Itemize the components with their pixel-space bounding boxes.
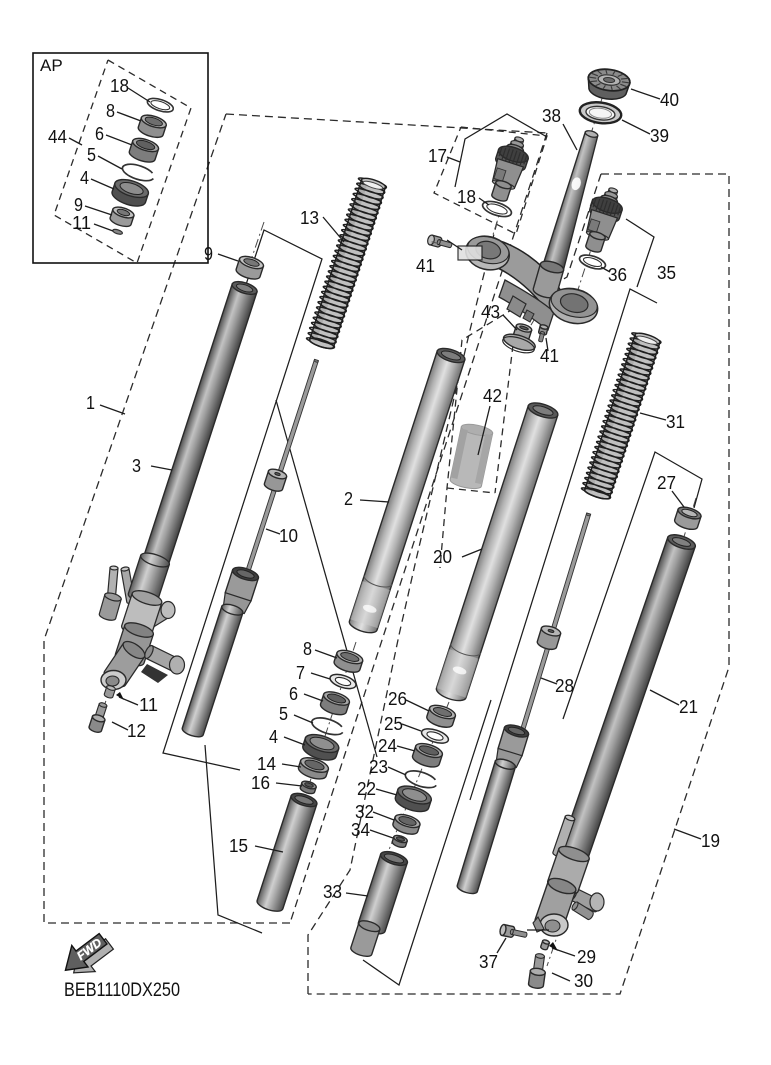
- svg-text:1: 1: [86, 392, 95, 413]
- svg-text:28: 28: [555, 675, 574, 696]
- svg-text:21: 21: [679, 696, 698, 717]
- svg-text:24: 24: [378, 735, 397, 756]
- svg-text:41: 41: [540, 345, 559, 366]
- svg-text:18: 18: [457, 186, 476, 207]
- svg-text:44: 44: [48, 126, 67, 147]
- svg-text:43: 43: [481, 301, 500, 322]
- svg-text:22: 22: [357, 778, 376, 799]
- svg-text:8: 8: [303, 638, 312, 659]
- svg-text:4: 4: [269, 726, 278, 747]
- svg-text:6: 6: [289, 683, 298, 704]
- svg-text:5: 5: [279, 703, 288, 724]
- svg-text:8: 8: [106, 100, 115, 121]
- svg-text:BEB1110DX250: BEB1110DX250: [64, 980, 180, 1001]
- svg-text:33: 33: [323, 881, 342, 902]
- svg-text:12: 12: [127, 720, 146, 741]
- svg-text:39: 39: [650, 125, 669, 146]
- svg-text:23: 23: [369, 756, 388, 777]
- svg-text:41: 41: [416, 255, 435, 276]
- svg-text:20: 20: [433, 546, 452, 567]
- svg-text:29: 29: [577, 946, 596, 967]
- svg-text:17: 17: [428, 145, 447, 166]
- svg-text:40: 40: [660, 89, 679, 110]
- svg-text:2: 2: [344, 488, 353, 509]
- svg-text:7: 7: [296, 662, 305, 683]
- svg-text:42: 42: [483, 385, 502, 406]
- svg-text:35: 35: [657, 262, 676, 283]
- svg-text:26: 26: [388, 688, 407, 709]
- svg-text:37: 37: [479, 951, 498, 972]
- svg-text:30: 30: [574, 970, 593, 991]
- svg-text:34: 34: [351, 819, 370, 840]
- svg-text:3: 3: [132, 455, 141, 476]
- svg-text:19: 19: [701, 830, 720, 851]
- svg-text:36: 36: [608, 264, 627, 285]
- svg-text:11: 11: [139, 694, 158, 715]
- svg-text:6: 6: [95, 123, 104, 144]
- svg-text:38: 38: [542, 105, 561, 126]
- svg-text:16: 16: [251, 772, 270, 793]
- svg-text:31: 31: [666, 411, 685, 432]
- svg-text:10: 10: [279, 525, 298, 546]
- svg-text:5: 5: [87, 144, 96, 165]
- svg-text:11: 11: [72, 212, 91, 233]
- svg-text:4: 4: [80, 167, 89, 188]
- svg-text:25: 25: [384, 713, 403, 734]
- svg-text:9: 9: [204, 243, 213, 264]
- svg-text:14: 14: [257, 753, 276, 774]
- svg-text:27: 27: [657, 472, 676, 493]
- svg-text:18: 18: [110, 75, 129, 96]
- svg-text:AP: AP: [40, 56, 63, 75]
- svg-text:13: 13: [300, 207, 319, 228]
- svg-text:15: 15: [229, 835, 248, 856]
